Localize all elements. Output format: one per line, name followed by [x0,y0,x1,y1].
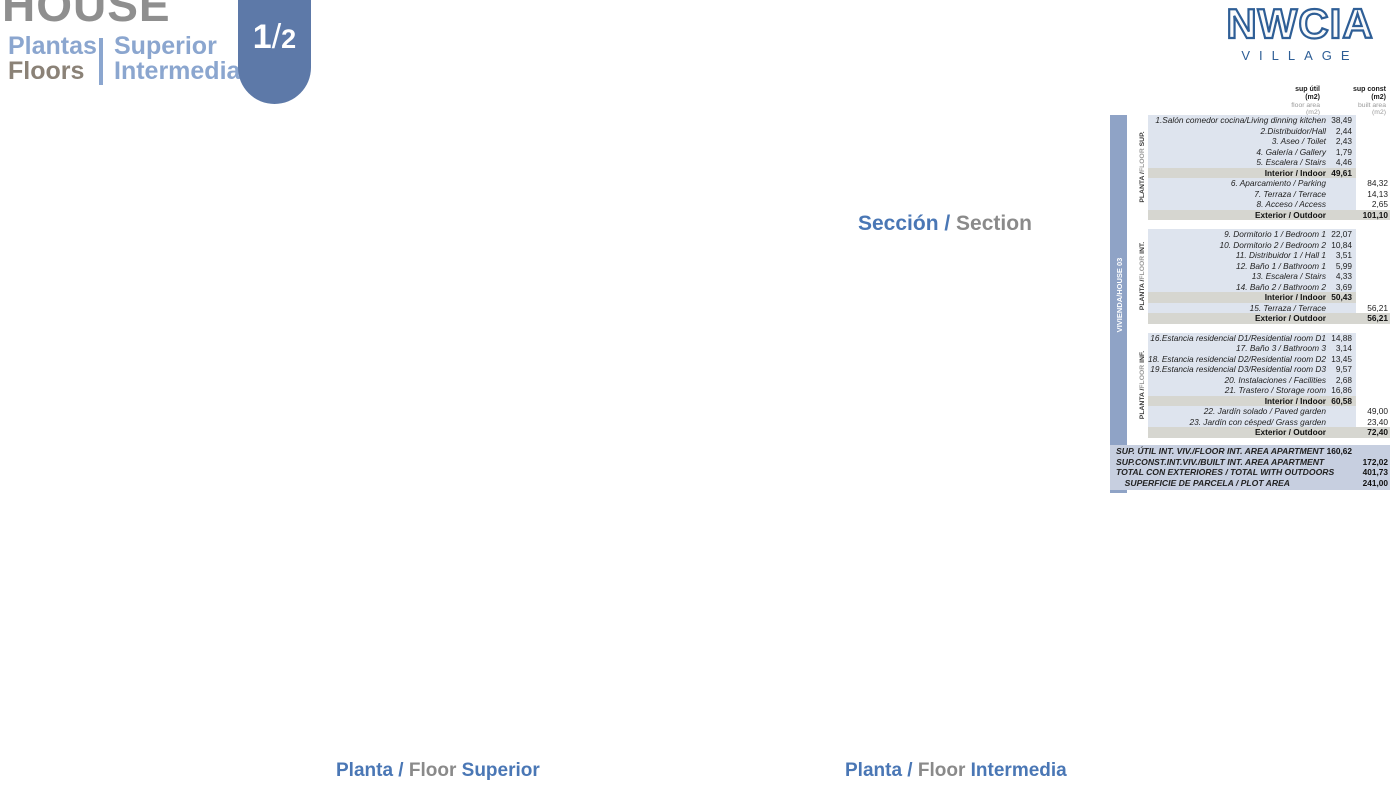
svg-text:NWCIA: NWCIA [1226,0,1373,47]
svg-text:VILLAGE: VILLAGE [1241,48,1358,63]
